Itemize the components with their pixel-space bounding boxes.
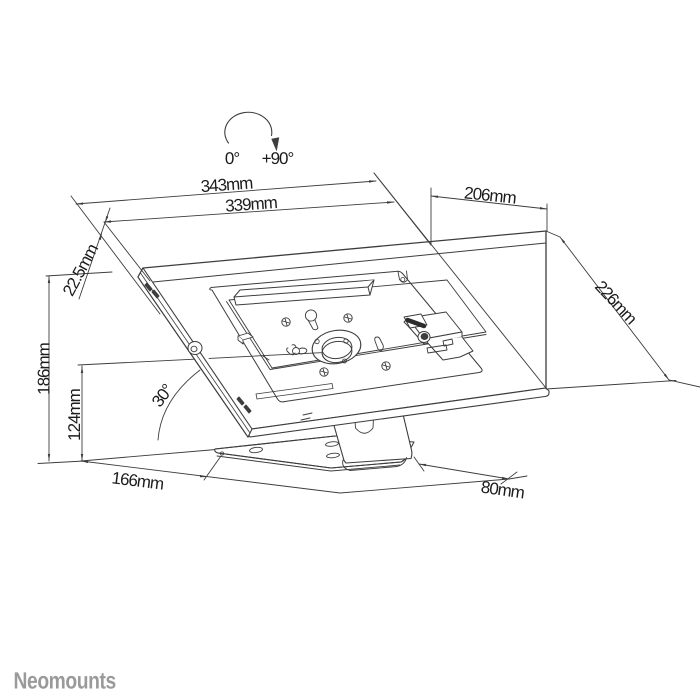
svg-text:124mm: 124mm (65, 388, 84, 441)
svg-text:343mm: 343mm (200, 173, 254, 196)
svg-text:+90°: +90° (262, 149, 294, 168)
svg-text:Neomounts: Neomounts (14, 668, 117, 694)
svg-text:186mm: 186mm (35, 342, 54, 395)
svg-text:0°: 0° (225, 149, 239, 168)
svg-text:339mm: 339mm (225, 193, 279, 216)
